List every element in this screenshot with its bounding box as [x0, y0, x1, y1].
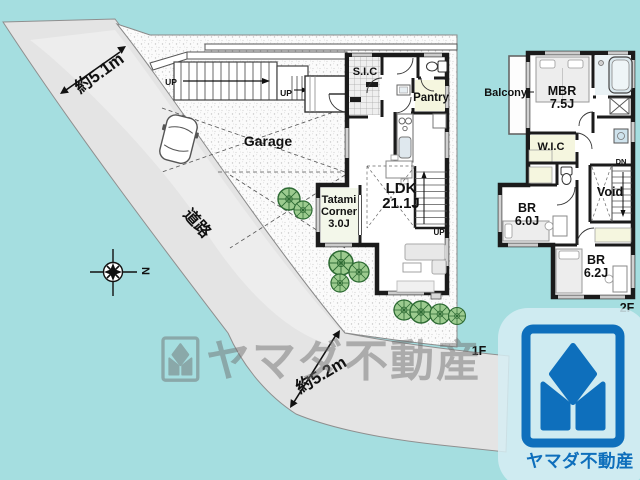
tatami-label-2: Corner: [321, 206, 358, 218]
stairs-up-label-1: UP: [165, 77, 177, 87]
yamada-logo-text: ヤマダ不動産: [526, 451, 634, 471]
br2-size-label: 6.2J: [584, 266, 608, 280]
washing-machine: [610, 98, 629, 114]
br1-size-label: 6.0J: [515, 214, 539, 228]
ldk-size-label: 21.1J: [382, 195, 420, 212]
watermark: ヤマダ不動産: [163, 337, 482, 386]
entrance-porch: [305, 76, 347, 112]
watermark-text: ヤマダ不動産: [206, 337, 482, 386]
void-label: Void: [597, 185, 623, 199]
floorplan-image: Garage UP UP: [0, 0, 640, 480]
washbasin: [614, 129, 628, 143]
stairs-up-label-interior: UP: [433, 228, 445, 237]
stairs-up-label-2: UP: [280, 88, 292, 98]
dn-label: DN: [616, 157, 627, 166]
wic-label: W.I.C: [538, 141, 565, 153]
mbr-label: MBR: [548, 84, 576, 98]
tatami-size-label: 3.0J: [328, 218, 349, 230]
br1-label: BR: [518, 201, 536, 215]
toilet-2f: [561, 167, 572, 185]
floorplan-svg: Garage UP UP: [0, 0, 640, 480]
compass-north-label: N: [139, 267, 151, 275]
br2-label: BR: [587, 253, 605, 267]
tatami-label-1: Tatami: [322, 194, 357, 206]
pantry-label: Pantry: [413, 92, 449, 104]
desk-br2: [613, 266, 627, 292]
desk-br1: [553, 216, 567, 236]
balcony-label: Balcony: [484, 87, 528, 99]
sic-label: S.I.C: [353, 66, 378, 78]
exterior-stairs: UP UP: [165, 62, 309, 100]
garage-label: Garage: [244, 133, 292, 149]
mbr-size-label: 7.5J: [550, 97, 574, 111]
